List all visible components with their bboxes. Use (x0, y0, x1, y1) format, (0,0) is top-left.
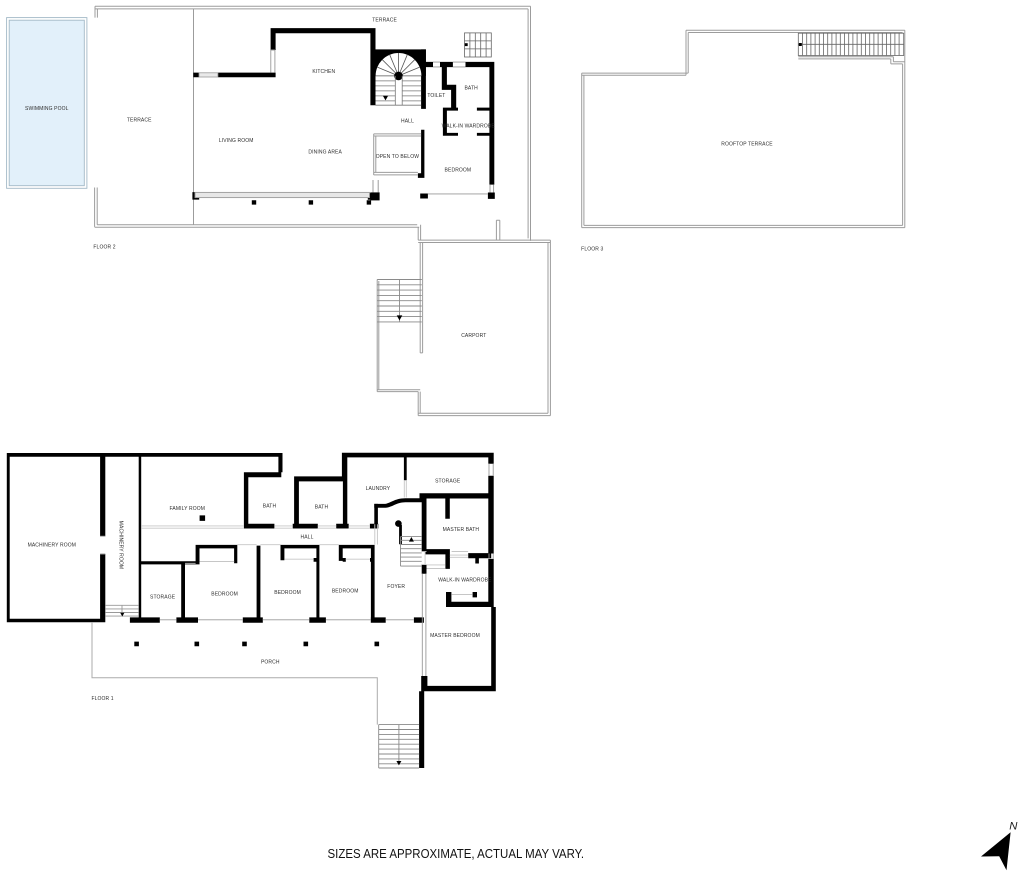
svg-text:MASTER BEDROOM: MASTER BEDROOM (430, 633, 480, 639)
svg-text:PORCH: PORCH (261, 660, 280, 666)
svg-text:FLOOR 1: FLOOR 1 (91, 696, 113, 702)
svg-text:MASTER BATH: MASTER BATH (443, 527, 480, 533)
svg-text:HALL: HALL (401, 119, 414, 125)
svg-text:BATH: BATH (464, 86, 478, 92)
svg-text:BEDROOM: BEDROOM (332, 588, 359, 594)
svg-text:STORAGE: STORAGE (435, 479, 461, 485)
svg-text:SIZES ARE APPROXIMATE, ACTUAL: SIZES ARE APPROXIMATE, ACTUAL MAY VARY. (328, 846, 585, 861)
svg-text:OPEN TO BELOW: OPEN TO BELOW (376, 154, 419, 160)
svg-text:DINING AREA: DINING AREA (308, 150, 342, 156)
svg-text:TERRACE: TERRACE (127, 118, 152, 124)
svg-text:MACHINERY ROOM: MACHINERY ROOM (118, 521, 124, 569)
svg-text:WALK-IN WARDROBE: WALK-IN WARDROBE (442, 124, 496, 130)
svg-text:TOILET: TOILET (427, 93, 445, 99)
svg-text:BEDROOM: BEDROOM (211, 591, 238, 597)
svg-text:ROOFTOP TERRACE: ROOFTOP TERRACE (721, 142, 773, 148)
svg-text:FLOOR 2: FLOOR 2 (93, 245, 115, 251)
svg-text:WALK-IN WARDROBE: WALK-IN WARDROBE (438, 578, 492, 584)
svg-text:FOYER: FOYER (387, 584, 405, 590)
svg-text:BATH: BATH (263, 504, 277, 510)
svg-text:LAUNDRY: LAUNDRY (366, 486, 391, 492)
svg-text:CARPORT: CARPORT (461, 333, 486, 339)
svg-text:LIVING ROOM: LIVING ROOM (219, 138, 254, 144)
svg-text:BEDROOM: BEDROOM (274, 590, 301, 596)
svg-text:FAMILY ROOM: FAMILY ROOM (170, 506, 206, 512)
svg-text:STORAGE: STORAGE (150, 594, 176, 600)
svg-text:TERRACE: TERRACE (372, 18, 397, 24)
svg-text:HALL: HALL (301, 535, 314, 541)
svg-text:BATH: BATH (315, 504, 329, 510)
svg-text:SWIMMING POOL: SWIMMING POOL (25, 106, 69, 112)
svg-text:BEDROOM: BEDROOM (445, 168, 472, 174)
svg-text:KITCHEN: KITCHEN (312, 69, 335, 75)
svg-text:N: N (1009, 820, 1018, 832)
svg-text:MACHINERY ROOM: MACHINERY ROOM (28, 543, 76, 549)
svg-text:FLOOR 3: FLOOR 3 (581, 247, 603, 253)
